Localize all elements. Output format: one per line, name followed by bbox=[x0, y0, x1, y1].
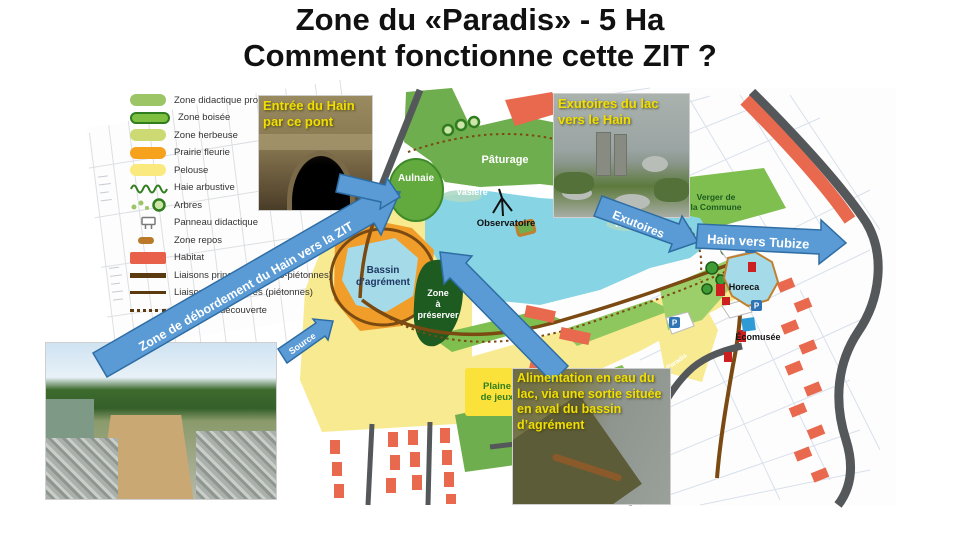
photo-caption: Entrée du Hain par ce pont bbox=[263, 98, 355, 131]
photo-caption: Alimentation en eau du lac, via une sort… bbox=[517, 371, 667, 434]
flow-arrows: Zone de débordement du Hain vers la ZIT … bbox=[0, 0, 960, 540]
photo-caption: Exutoires du lac vers le Hain bbox=[558, 96, 658, 129]
arrow-alimentation bbox=[440, 252, 568, 382]
slide: { "title": { "line1": "Zone du «Paradis»… bbox=[0, 0, 960, 540]
